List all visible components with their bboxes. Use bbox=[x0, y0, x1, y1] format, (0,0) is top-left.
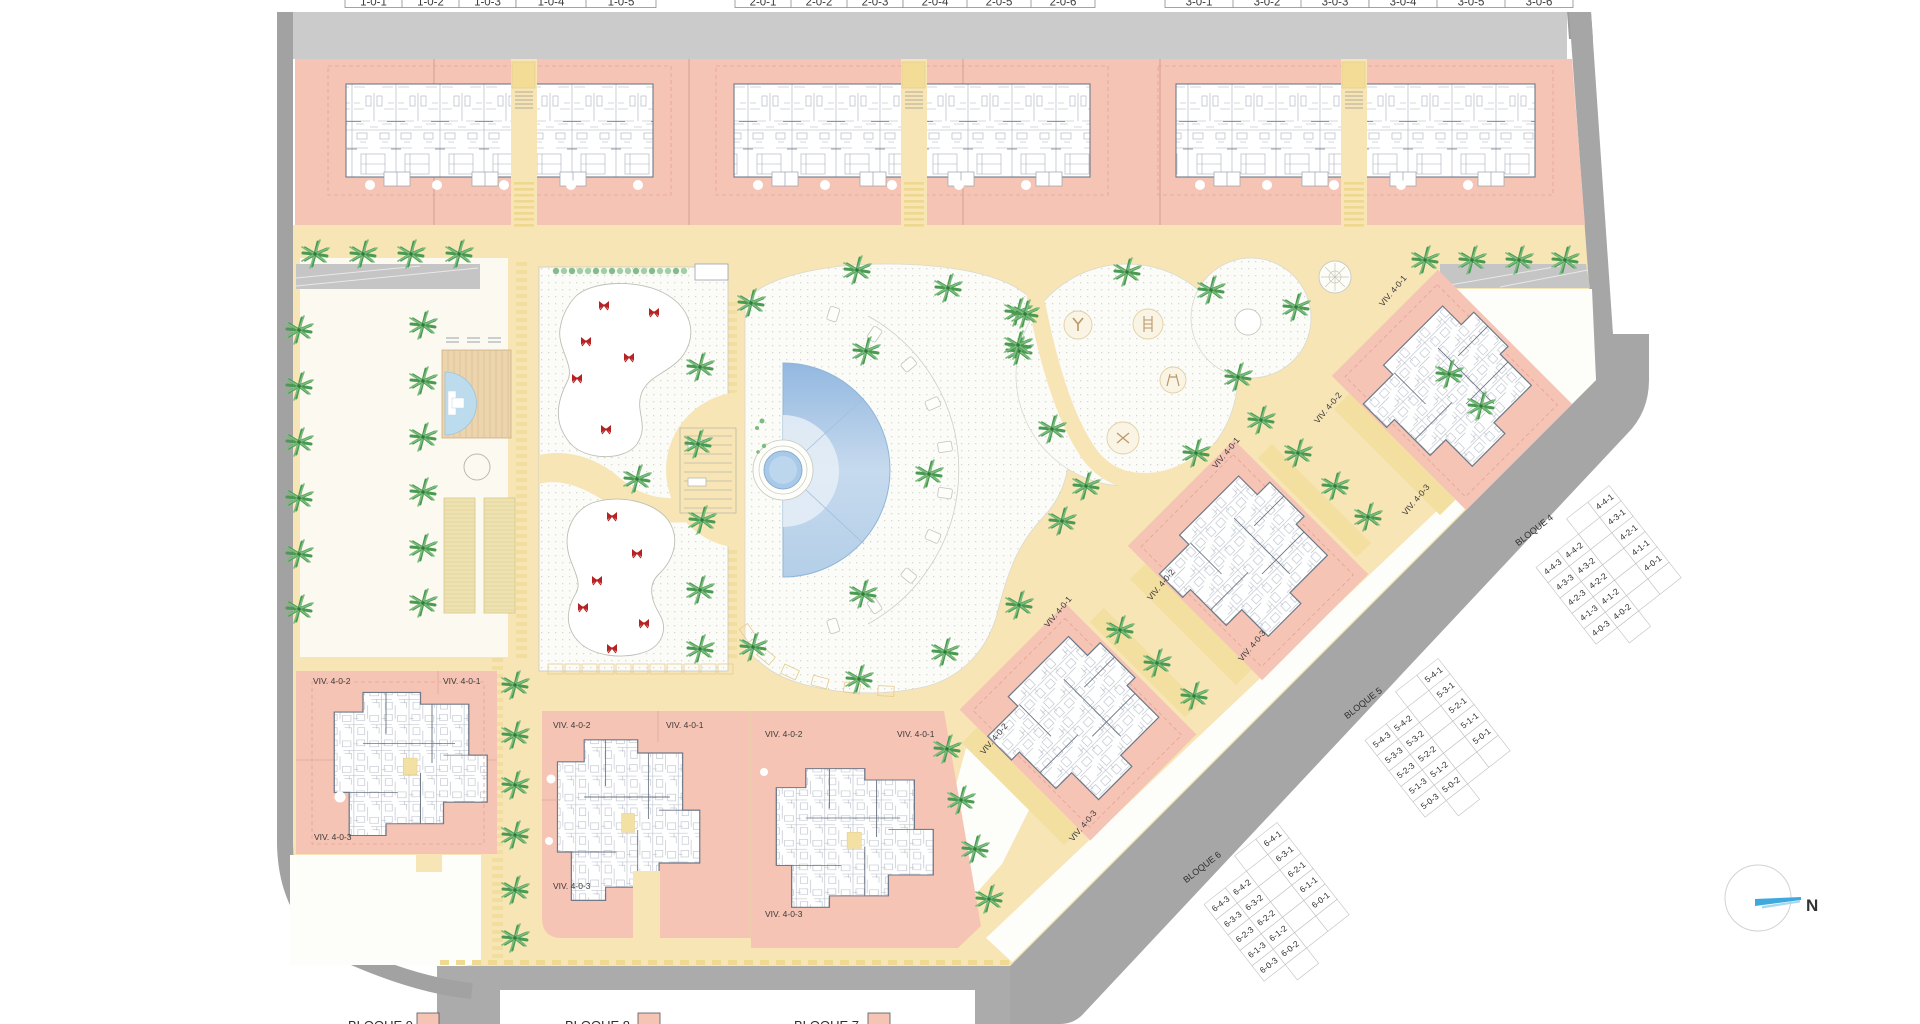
svg-text:3-0-3: 3-0-3 bbox=[1322, 0, 1349, 9]
svg-text:2-0-1: 2-0-1 bbox=[750, 0, 777, 9]
svg-text:VIV. 4-0-3: VIV. 4-0-3 bbox=[553, 881, 591, 891]
svg-text:VIV. 4-0-2: VIV. 4-0-2 bbox=[553, 720, 591, 730]
svg-text:3-0-4: 3-0-4 bbox=[1390, 0, 1417, 9]
svg-text:BLOQUE 7: BLOQUE 7 bbox=[794, 1018, 859, 1024]
svg-text:2-0-6: 2-0-6 bbox=[1050, 0, 1077, 9]
svg-text:VIV. 4-0-2: VIV. 4-0-2 bbox=[765, 729, 803, 739]
svg-text:BLOQUE 8: BLOQUE 8 bbox=[565, 1018, 630, 1024]
svg-text:VIV. 4-0-3: VIV. 4-0-3 bbox=[765, 909, 803, 919]
svg-text:2-0-2: 2-0-2 bbox=[806, 0, 833, 9]
svg-text:VIV. 4-0-1: VIV. 4-0-1 bbox=[666, 720, 704, 730]
svg-text:3-0-6: 3-0-6 bbox=[1526, 0, 1553, 9]
svg-text:2-0-3: 2-0-3 bbox=[862, 0, 889, 9]
svg-text:VIV. 4-0-1: VIV. 4-0-1 bbox=[443, 676, 481, 686]
svg-text:1-0-5: 1-0-5 bbox=[608, 0, 635, 9]
svg-text:3-0-5: 3-0-5 bbox=[1458, 0, 1485, 9]
svg-text:1-0-1: 1-0-1 bbox=[360, 0, 387, 9]
svg-text:N: N bbox=[1806, 896, 1818, 915]
svg-text:3-0-1: 3-0-1 bbox=[1186, 0, 1213, 9]
svg-text:1-0-2: 1-0-2 bbox=[417, 0, 444, 9]
svg-text:1-0-3: 1-0-3 bbox=[474, 0, 501, 9]
svg-text:BLOQUE 9: BLOQUE 9 bbox=[348, 1018, 413, 1024]
svg-text:VIV. 4-0-3: VIV. 4-0-3 bbox=[314, 832, 352, 842]
svg-text:VIV. 4-0-2: VIV. 4-0-2 bbox=[313, 676, 351, 686]
svg-text:2-0-5: 2-0-5 bbox=[986, 0, 1013, 9]
svg-text:2-0-4: 2-0-4 bbox=[922, 0, 949, 9]
svg-text:VIV. 4-0-1: VIV. 4-0-1 bbox=[897, 729, 935, 739]
svg-text:1-0-4: 1-0-4 bbox=[538, 0, 565, 9]
svg-text:3-0-2: 3-0-2 bbox=[1254, 0, 1281, 9]
